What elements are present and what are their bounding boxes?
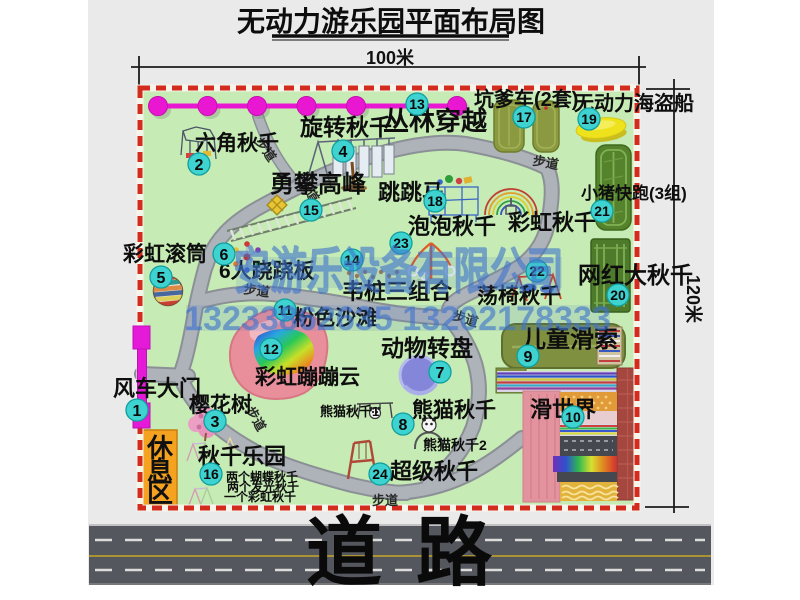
svg-text:8: 8 xyxy=(399,417,408,434)
svg-text:小猪快跑(3组): 小猪快跑(3组) xyxy=(581,183,687,203)
svg-text:六角秋千: 六角秋千 xyxy=(195,131,279,155)
svg-text:彩虹蹦蹦云: 彩虹蹦蹦云 xyxy=(254,366,360,389)
svg-text:网红大秋千: 网红大秋千 xyxy=(578,262,693,288)
svg-text:24: 24 xyxy=(372,466,388,482)
svg-text:1: 1 xyxy=(133,403,142,420)
svg-text:泡泡秋千: 泡泡秋千 xyxy=(408,214,496,239)
svg-text:13233862635 13202178333: 13233862635 13202178333 xyxy=(184,300,611,338)
svg-text:路: 路 xyxy=(416,511,493,596)
svg-text:4: 4 xyxy=(339,144,348,161)
svg-text:无动力游乐园平面布局图: 无动力游乐园平面布局图 xyxy=(237,6,545,37)
svg-text:旋转秋千: 旋转秋千 xyxy=(300,114,392,140)
svg-text:7: 7 xyxy=(436,365,445,382)
svg-text:丛林穿越: 丛林穿越 xyxy=(383,106,488,136)
svg-text:超级秋千: 超级秋千 xyxy=(390,459,478,484)
svg-text:100米: 100米 xyxy=(366,47,415,68)
svg-text:熊猫秋千2: 熊猫秋千2 xyxy=(423,437,487,453)
svg-text:21: 21 xyxy=(594,203,610,219)
svg-text:5: 5 xyxy=(157,270,166,287)
svg-text:18: 18 xyxy=(427,193,443,209)
svg-text:彩虹滚筒: 彩虹滚筒 xyxy=(122,242,207,266)
svg-text:3: 3 xyxy=(211,414,220,431)
svg-text:安游乐设备有限公司: 安游乐设备有限公司 xyxy=(234,244,564,300)
svg-text:动物转盘: 动物转盘 xyxy=(381,335,473,361)
svg-text:区: 区 xyxy=(147,478,173,508)
svg-text:2: 2 xyxy=(195,157,204,174)
svg-text:步道: 步道 xyxy=(372,493,398,508)
svg-text:16: 16 xyxy=(203,466,219,482)
svg-text:12: 12 xyxy=(263,341,279,357)
svg-text:熊猫秋千: 熊猫秋千 xyxy=(412,398,496,422)
svg-text:13: 13 xyxy=(409,96,425,112)
svg-text:彩虹秋千: 彩虹秋千 xyxy=(507,210,596,235)
svg-text:10: 10 xyxy=(565,409,581,425)
svg-text:17: 17 xyxy=(516,109,532,125)
svg-text:勇攀高峰: 勇攀高峰 xyxy=(270,170,366,198)
svg-text:15: 15 xyxy=(303,202,319,218)
svg-text:风车大门: 风车大门 xyxy=(113,376,201,401)
svg-text:20: 20 xyxy=(610,287,626,303)
svg-text:熊猫秋千1: 熊猫秋千1 xyxy=(320,404,379,419)
svg-text:一个彩虹秋千: 一个彩虹秋千 xyxy=(224,489,296,504)
svg-text:道: 道 xyxy=(306,511,382,596)
svg-text:6: 6 xyxy=(220,247,229,264)
svg-text:19: 19 xyxy=(581,111,597,127)
svg-text:9: 9 xyxy=(524,349,533,366)
